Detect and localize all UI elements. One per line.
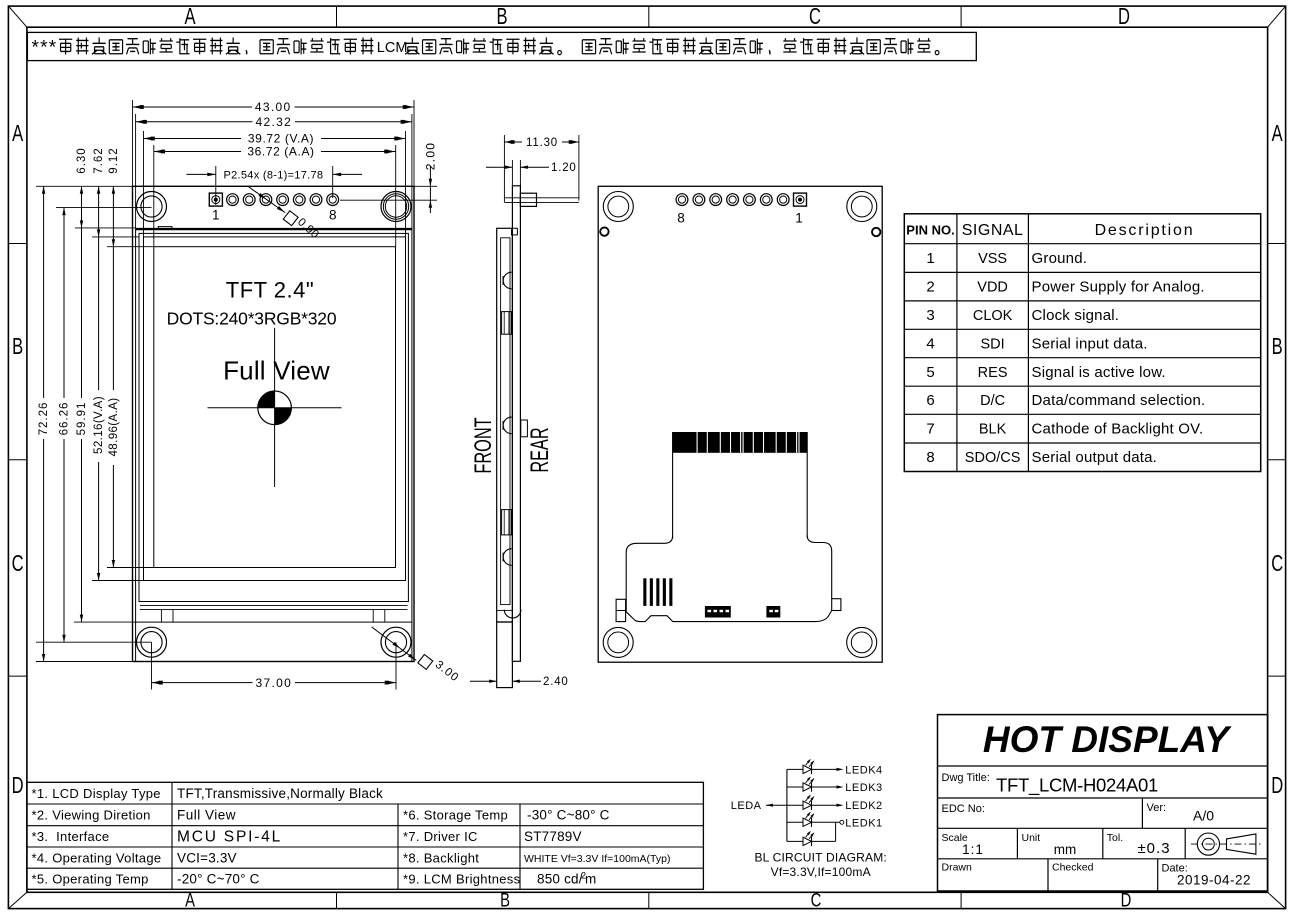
svg-text:D: D	[1121, 890, 1132, 911]
svg-text:52.16(V.A): 52.16(V.A)	[93, 396, 105, 454]
svg-text:Ver:: Ver:	[1147, 802, 1167, 814]
svg-text:WHITE Vf=3.3V If=100mA(Typ): WHITE Vf=3.3V If=100mA(Typ)	[524, 853, 670, 865]
svg-text:1.20: 1.20	[551, 162, 577, 174]
svg-text:36.72 (A.A): 36.72 (A.A)	[247, 145, 314, 159]
svg-text:8: 8	[329, 208, 337, 223]
svg-text:*1. LCD Display Type: *1. LCD Display Type	[32, 786, 161, 801]
svg-text:*7. Driver IC: *7. Driver IC	[403, 829, 478, 844]
svg-text:*2. Viewing Diretion: *2. Viewing Diretion	[32, 808, 151, 823]
svg-text:66.26: 66.26	[58, 402, 70, 436]
svg-text:B: B	[496, 5, 507, 30]
svg-text:*8. Backlight: *8. Backlight	[403, 850, 479, 865]
svg-text:mm: mm	[1054, 842, 1077, 857]
svg-text:REAR: REAR	[527, 427, 554, 472]
svg-text:Drawn: Drawn	[942, 862, 973, 874]
svg-text:***: ***	[32, 38, 58, 59]
svg-text:D: D	[1118, 5, 1130, 30]
svg-text:Unit: Unit	[1022, 832, 1041, 844]
svg-text:TFT_LCM-H024A01: TFT_LCM-H024A01	[996, 775, 1158, 797]
svg-text:-20° C~70° C: -20° C~70° C	[177, 872, 260, 887]
svg-text:±0.3: ±0.3	[1137, 840, 1170, 857]
svg-text:Signal is active low.: Signal is active low.	[1032, 364, 1166, 381]
svg-text:A: A	[184, 5, 196, 30]
svg-text:EDC No:: EDC No:	[942, 803, 985, 815]
svg-text:LCM: LCM	[377, 40, 408, 56]
svg-text:CLOK: CLOK	[973, 308, 1013, 324]
svg-text:2: 2	[926, 278, 934, 295]
svg-text:D: D	[12, 773, 24, 798]
svg-text:6.30: 6.30	[76, 147, 88, 173]
svg-text:D/C: D/C	[980, 393, 1005, 409]
svg-text:*3. Interface: *3. Interface	[32, 829, 110, 844]
svg-text:Checked: Checked	[1052, 862, 1094, 874]
svg-text:SDO/CS: SDO/CS	[965, 450, 1021, 466]
svg-text:2019-04-22: 2019-04-22	[1177, 873, 1251, 888]
svg-text:72.26: 72.26	[38, 402, 50, 436]
svg-text:C: C	[1271, 551, 1283, 576]
svg-text:BLK: BLK	[979, 422, 1007, 438]
svg-text:Data/command selection.: Data/command selection.	[1032, 392, 1206, 409]
svg-text:6: 6	[926, 392, 934, 409]
svg-text:D: D	[1271, 773, 1283, 798]
svg-text:1:1: 1:1	[962, 842, 984, 857]
svg-text:Tol.: Tol.	[1107, 832, 1123, 844]
svg-text:9.12: 9.12	[108, 147, 120, 173]
svg-text:C: C	[12, 551, 24, 576]
svg-text:B: B	[500, 890, 510, 911]
svg-text:5: 5	[926, 364, 934, 381]
svg-text:TFT 2.4": TFT 2.4"	[226, 278, 314, 303]
svg-text:1: 1	[795, 211, 803, 226]
svg-text:*6. Storage Temp: *6. Storage Temp	[403, 808, 508, 823]
svg-text:1: 1	[926, 250, 934, 267]
svg-text:7.62: 7.62	[93, 147, 105, 173]
svg-text:11.30: 11.30	[526, 137, 558, 149]
svg-text:HOT DISPLAY: HOT DISPLAY	[983, 719, 1232, 760]
svg-text:8: 8	[926, 449, 934, 466]
svg-text:Full View: Full View	[223, 356, 330, 386]
svg-text:SDI: SDI	[981, 336, 1005, 352]
svg-text:48.96(A.A): 48.96(A.A)	[108, 398, 120, 457]
svg-text:1: 1	[212, 208, 220, 223]
svg-text:C: C	[811, 890, 822, 911]
svg-text:8: 8	[677, 211, 685, 226]
svg-text:P2.54x (8-1)=17.78: P2.54x (8-1)=17.78	[223, 169, 323, 181]
svg-text:Power Supply for Analog.: Power Supply for Analog.	[1032, 278, 1205, 295]
svg-text:TFT,Transmissive,Normally Blac: TFT,Transmissive,Normally Black	[177, 786, 383, 801]
svg-text:SIGNAL: SIGNAL	[962, 222, 1024, 239]
svg-text:A: A	[185, 890, 195, 911]
svg-text:RES: RES	[978, 365, 1008, 381]
svg-text:Vf=3.3V,If=100mA: Vf=3.3V,If=100mA	[771, 865, 871, 879]
svg-text:A: A	[12, 121, 24, 146]
svg-text:3: 3	[926, 307, 934, 324]
svg-text:B: B	[12, 334, 23, 359]
svg-text:Clock signal.: Clock signal.	[1032, 307, 1120, 324]
svg-text:FRONT: FRONT	[470, 417, 497, 474]
svg-text:LEDK3: LEDK3	[845, 782, 882, 794]
svg-text:39.72 (V.A): 39.72 (V.A)	[248, 132, 314, 146]
svg-text:Dwg Title:: Dwg Title:	[942, 772, 990, 784]
svg-text:MCU SPI-4L: MCU SPI-4L	[177, 829, 282, 846]
svg-text:m: m	[585, 872, 596, 887]
svg-text:ST7789V: ST7789V	[524, 829, 582, 844]
svg-text:*4. Operating Voltage: *4. Operating Voltage	[32, 850, 162, 865]
svg-text:B: B	[1272, 334, 1283, 359]
svg-text:LEDK1: LEDK1	[845, 817, 882, 829]
svg-text:VSS: VSS	[978, 251, 1007, 267]
svg-text:LEDK2: LEDK2	[845, 800, 882, 812]
svg-text:43.00: 43.00	[255, 100, 292, 114]
svg-text:37.00: 37.00	[256, 676, 293, 690]
svg-text:VDD: VDD	[977, 279, 1008, 295]
svg-text:A/0: A/0	[1193, 808, 1214, 824]
svg-text:BL CIRCUIT DIAGRAM:: BL CIRCUIT DIAGRAM:	[754, 850, 886, 864]
svg-text:VCI=3.3V: VCI=3.3V	[177, 850, 237, 865]
svg-text:Description: Description	[1095, 222, 1195, 239]
svg-text:A: A	[1272, 121, 1284, 146]
svg-text:42.32: 42.32	[256, 115, 293, 129]
svg-text:C: C	[809, 5, 821, 30]
svg-text:LEDA: LEDA	[731, 800, 762, 812]
svg-text:Serial output data.: Serial output data.	[1032, 449, 1158, 466]
svg-text:Ground.: Ground.	[1032, 250, 1088, 267]
svg-text:*5. Operating Temp: *5. Operating Temp	[32, 872, 149, 887]
svg-text:59.91: 59.91	[76, 402, 88, 436]
svg-text:-30° C~80° C: -30° C~80° C	[527, 808, 610, 823]
svg-text:Serial input data.: Serial input data.	[1032, 335, 1148, 352]
svg-text:DOTS:240*3RGB*320: DOTS:240*3RGB*320	[167, 309, 337, 329]
svg-text:Cathode of Backlight OV.: Cathode of Backlight OV.	[1032, 421, 1204, 438]
svg-text:4: 4	[926, 335, 934, 352]
svg-text:7: 7	[926, 421, 934, 438]
svg-text:2.40: 2.40	[543, 676, 569, 688]
svg-text:850 cd/: 850 cd/	[537, 872, 583, 887]
svg-text:Full View: Full View	[177, 808, 236, 823]
svg-text:PIN NO.: PIN NO.	[906, 223, 954, 238]
svg-text:LEDK4: LEDK4	[845, 764, 882, 776]
svg-text:2.00: 2.00	[423, 142, 437, 171]
svg-text:*9. LCM Brightness: *9. LCM Brightness	[403, 872, 521, 887]
